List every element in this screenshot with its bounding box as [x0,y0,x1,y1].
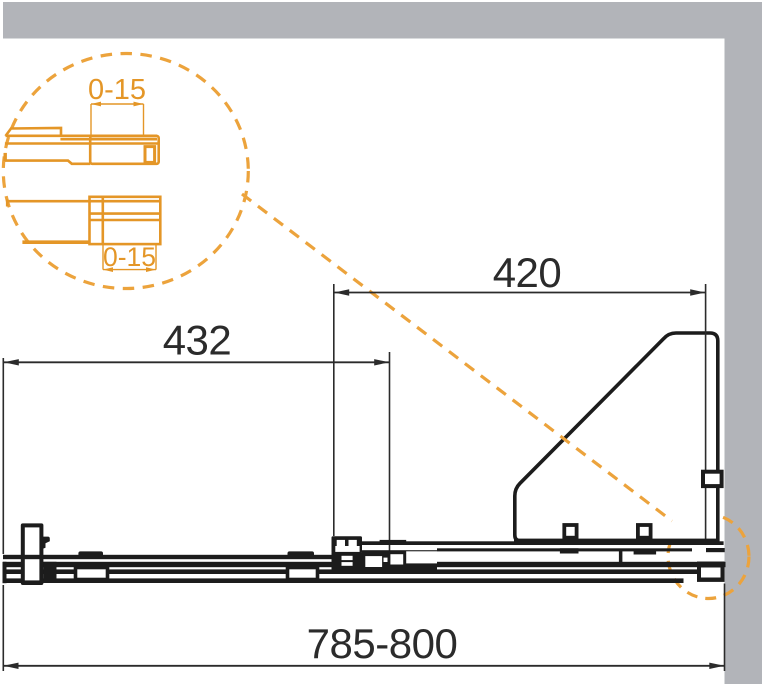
svg-text:0-15: 0-15 [103,242,156,272]
svg-text:0-15: 0-15 [88,74,146,106]
svg-text:432: 432 [163,317,232,364]
svg-text:785-800: 785-800 [307,620,458,667]
svg-text:420: 420 [493,249,562,296]
